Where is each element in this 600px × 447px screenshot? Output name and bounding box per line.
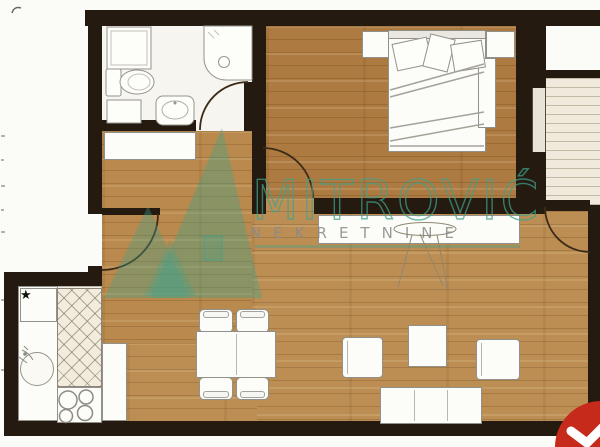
sketch-overlay: MITROVIĆ NEKRETNINE [0, 0, 600, 447]
bathroom-door-arc [200, 82, 248, 130]
brand-mountain-logo [104, 128, 262, 298]
kitchen-sink-icon [19, 346, 54, 386]
watermark-subtitle-text: NEKRETNINE [250, 224, 466, 242]
watermark-brand-text: MITROVIĆ [252, 169, 541, 232]
toilet-icon [106, 69, 154, 96]
scan-marks [1, 8, 21, 370]
balcony-door-arc [545, 207, 590, 252]
floor-plan: ★ [0, 0, 600, 447]
washing-machine-icon [107, 27, 151, 69]
bathroom-cabinet-icon [107, 100, 141, 123]
shower-icon [204, 26, 252, 80]
bed-duvet-folds [390, 64, 484, 146]
watermark-underline [255, 245, 520, 248]
washbasin-icon [156, 96, 194, 125]
stove-burners-icon [59, 390, 93, 423]
check-icon[interactable] [555, 401, 600, 447]
